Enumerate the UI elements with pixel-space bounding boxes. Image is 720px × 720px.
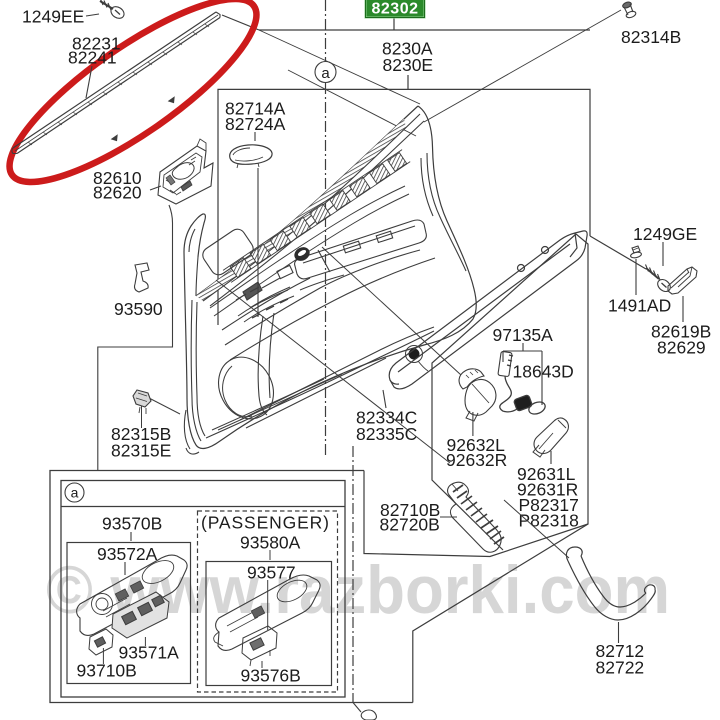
- svg-text:1491AD: 1491AD: [608, 296, 671, 316]
- svg-text:93570B: 93570B: [102, 514, 162, 534]
- svg-text:93590: 93590: [114, 299, 163, 319]
- svg-text:93710B: 93710B: [77, 661, 137, 681]
- svg-text:(PASSENGER): (PASSENGER): [201, 513, 329, 533]
- svg-text:97135A: 97135A: [493, 325, 554, 345]
- svg-text:82241: 82241: [68, 48, 117, 68]
- svg-text:93576B: 93576B: [241, 666, 301, 686]
- svg-text:18643D: 18643D: [513, 362, 574, 382]
- svg-text:82720B: 82720B: [380, 515, 440, 535]
- svg-text:82724A: 82724A: [225, 114, 286, 134]
- svg-text:93572A: 93572A: [97, 544, 158, 564]
- svg-text:82629: 82629: [657, 338, 706, 358]
- svg-text:82315E: 82315E: [111, 441, 171, 461]
- svg-text:82314B: 82314B: [621, 27, 681, 47]
- svg-text:82302: 82302: [372, 1, 419, 18]
- svg-text:93580A: 93580A: [240, 533, 301, 553]
- svg-text:a: a: [321, 65, 330, 82]
- svg-text:93571A: 93571A: [119, 643, 180, 663]
- svg-text:82722: 82722: [596, 658, 645, 678]
- svg-text:82620: 82620: [93, 183, 142, 203]
- svg-text:82335C: 82335C: [356, 424, 417, 444]
- svg-text:92632R: 92632R: [446, 450, 507, 470]
- svg-text:a: a: [71, 485, 79, 501]
- svg-text:1249EE: 1249EE: [22, 7, 84, 27]
- svg-text:8230E: 8230E: [383, 55, 434, 75]
- svg-text:1249GE: 1249GE: [633, 224, 697, 244]
